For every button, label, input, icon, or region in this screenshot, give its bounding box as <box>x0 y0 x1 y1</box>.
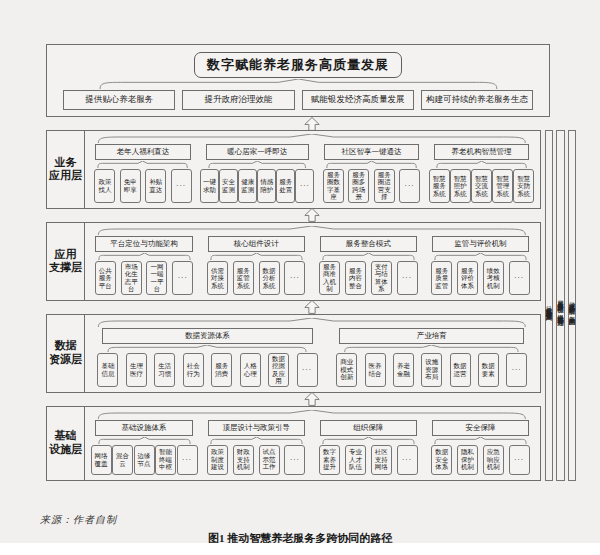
items-row: 数据安全体系隐私保护机制应急响应机制··· <box>426 445 534 475</box>
item-box: 生活习惯 <box>154 353 175 387</box>
layers-stack: 业务 应用层老年人福利直达政策找人免申即享补贴直达···暖心居家一呼即达一键求助… <box>46 117 541 481</box>
ellipsis-box: ··· <box>172 261 193 295</box>
groups-row-3: 基础设施体系网络覆盖混合云边缘节点智能终端中枢···顶层设计与政策引导政策制度建… <box>90 420 535 475</box>
layer-row-2: 数据 资源层数据资源体系基础信息生理医疗生活习惯社会行为服务消费人格心理数据挖掘… <box>46 314 541 393</box>
item-box: 边缘节点 <box>134 445 155 475</box>
brace-icon <box>96 79 501 89</box>
architecture-diagram: 数字赋能养老服务高质量发展 提供贴心养老服务提升政府治理效能赋能银发经济高质量发… <box>46 44 576 481</box>
item-box: 智慧安防系统 <box>513 169 534 203</box>
item-box: 数据安全体系 <box>431 445 452 475</box>
item-box: 社会行为 <box>183 353 204 387</box>
group-header: 老年人福利直达 <box>95 144 190 160</box>
brace-icon <box>97 161 188 168</box>
item-box: 生理医疗 <box>126 353 147 387</box>
side-columns: 社会保障体系（解决养老资金来源问题）养老服务体系（解决由谁提供、提供什么样的养老… <box>545 130 577 481</box>
layer-content-1: 平台定位与功能架构公共服务平台市场化生态平台一网一端一平台···核心组件设计供需… <box>85 223 540 300</box>
layer-arrow-row <box>46 301 541 314</box>
layer-content-0: 老年人福利直达政策找人免申即享补贴直达···暖心居家一呼即达一键求助安全监测健康… <box>85 131 540 208</box>
group-header: 组织保障 <box>320 420 417 436</box>
ellipsis-box: ··· <box>284 445 305 475</box>
group-header: 基础设施体系 <box>95 420 192 436</box>
group-3-0: 基础设施体系网络覆盖混合云边缘节点智能终端中枢··· <box>90 420 198 475</box>
item-box: 社区支持网络 <box>371 445 392 475</box>
group-header: 数据资源体系 <box>102 328 313 344</box>
brace-icon <box>434 437 527 444</box>
layer-label-1: 应用 支撑层 <box>47 223 85 300</box>
ellipsis-box: ··· <box>506 353 527 387</box>
item-box: 混合云 <box>112 445 133 475</box>
item-box: 服务评价体系 <box>457 261 478 295</box>
top-section-wrap: 数字赋能养老服务高质量发展 提供贴心养老服务提升政府治理效能赋能银发经济高质量发… <box>46 44 550 117</box>
item-box: 一网一端一平台 <box>146 261 167 295</box>
item-box: 供需对接系统 <box>207 261 228 295</box>
item-box: 数据运营 <box>450 353 471 387</box>
ellipsis-box: ··· <box>399 169 420 203</box>
items-row: 网络覆盖混合云边缘节点智能终端中枢··· <box>90 445 198 475</box>
items-row: 供需对接系统服务监管系统数据分析系统··· <box>202 261 310 295</box>
item-box: 智慧服务系统 <box>429 169 450 203</box>
item-box: 服务处置 <box>276 169 295 203</box>
item-box: 服务内容整合 <box>345 261 366 295</box>
group-1-3: 监管与评价机制服务质量监管服务评价体系绩效考核机制··· <box>426 236 534 295</box>
item-box: 数字素养提升 <box>319 445 340 475</box>
figure-caption: 图1 推动智慧养老服务多跨协同的路径 <box>0 531 600 543</box>
item-box: 政策制度建设 <box>207 445 228 475</box>
group-header: 服务整合模式 <box>320 236 417 252</box>
brace-icon <box>106 345 308 352</box>
brace-icon <box>94 410 530 419</box>
item-box: 财政支持机制 <box>233 445 254 475</box>
item-box: 智慧管理系统 <box>492 169 513 203</box>
item-box: 智能终端中枢 <box>155 445 176 475</box>
item-box: 数据挖掘及应用 <box>268 353 289 387</box>
ellipsis-box: ··· <box>297 353 318 387</box>
ellipsis-box: ··· <box>509 261 530 295</box>
top-goal-section: 数字赋能养老服务高质量发展 提供贴心养老服务提升政府治理效能赋能银发经济高质量发… <box>46 44 550 117</box>
brace-icon <box>94 226 530 235</box>
layer-content-3: 基础设施体系网络覆盖混合云边缘节点智能终端中枢···顶层设计与政策引导政策制度建… <box>85 407 540 480</box>
ellipsis-box: ··· <box>171 169 192 203</box>
item-box: 绩效考核机制 <box>483 261 504 295</box>
group-header: 产业培育 <box>339 328 524 344</box>
group-header: 顶层设计与政策引导 <box>208 420 305 436</box>
layer-arrow-row <box>46 393 541 406</box>
items-row: 智慧服务系统智慧照护系统智慧交流系统智慧管理系统智慧安防系统 <box>429 169 535 203</box>
item-box: 商业模式创新 <box>336 353 357 387</box>
item-box: 服务圈多跨场景 <box>348 169 369 203</box>
group-0-2: 社区智享一键通达服务圈数字基座服务圈多跨场景服务圈运营支撑··· <box>319 144 425 203</box>
items-row: 政策找人免申即享补贴直达··· <box>90 169 196 203</box>
item-box: 专业人才队伍 <box>345 445 366 475</box>
layer-arrow-row <box>46 209 541 222</box>
brace-icon <box>208 161 306 168</box>
group-header: 核心组件设计 <box>208 236 305 252</box>
group-header: 养老机构智慧管理 <box>434 144 529 160</box>
source-note: 来源：作者自制 <box>40 513 117 527</box>
group-0-0: 老年人福利直达政策找人免申即享补贴直达··· <box>90 144 196 203</box>
brace-icon <box>94 134 530 143</box>
brace-icon <box>434 253 527 260</box>
item-box: 数据分析系统 <box>259 261 280 295</box>
item-box: 医养结合 <box>365 353 386 387</box>
item-box: 基础信息 <box>97 353 118 387</box>
brace-icon <box>322 437 415 444</box>
figure-panel: 数字赋能养老服务高质量发展 提供贴心养老服务提升政府治理效能赋能银发经济高质量发… <box>0 0 600 543</box>
item-box: 服务圈数字基座 <box>323 169 344 203</box>
item-box: 公共服务平台 <box>95 261 116 295</box>
layer-row-1: 应用 支撑层平台定位与功能架构公共服务平台市场化生态平台一网一端一平台···核心… <box>46 222 541 301</box>
item-box: 市场化生态平台 <box>121 261 142 295</box>
item-box: 免申即享 <box>120 169 141 203</box>
group-header: 监管与评价机制 <box>432 236 529 252</box>
goal-box-3: 构建可持续的养老服务生态 <box>421 90 533 110</box>
items-row: 一键求助安全监测健康监测情感陪护服务处置··· <box>200 169 315 203</box>
item-box: 一键求助 <box>200 169 219 203</box>
brace-icon <box>210 437 303 444</box>
item-box: 服务圈运营支撑 <box>374 169 395 203</box>
brace-icon <box>343 345 520 352</box>
goal-box-0: 提供贴心养老服务 <box>63 90 175 110</box>
brace-icon <box>436 161 527 168</box>
group-1-2: 服务整合模式服务商准入机制服务内容整合支付与结算体系··· <box>314 236 422 295</box>
up-arrow-icon <box>304 208 320 222</box>
up-arrow-icon <box>304 117 320 131</box>
goals-row: 提供贴心养老服务提升政府治理效能赋能银发经济高质量发展构建可持续的养老服务生态 <box>57 90 539 110</box>
item-box: 服务消费 <box>211 353 232 387</box>
layer-label-0: 业务 应用层 <box>47 131 85 208</box>
group-header: 安全保障 <box>432 420 529 436</box>
side-column-0: 社会保障体系（解决养老资金来源问题） <box>545 130 554 481</box>
brace-icon <box>326 161 417 168</box>
up-arrow-icon <box>304 300 320 314</box>
brace-icon <box>98 253 191 260</box>
ellipsis-box: ··· <box>177 445 198 475</box>
group-header: 暖心居家一呼即达 <box>206 144 309 160</box>
item-box: 服务质量监管 <box>431 261 452 295</box>
item-box: 智慧照护系统 <box>450 169 471 203</box>
item-box: 政策找人 <box>94 169 115 203</box>
group-header: 平台定位与功能架构 <box>95 236 192 252</box>
layer-row-0: 业务 应用层老年人福利直达政策找人免申即享补贴直达···暖心居家一呼即达一键求助… <box>46 130 541 209</box>
item-box: 情感陪护 <box>257 169 276 203</box>
brace-icon <box>94 318 530 327</box>
group-0-1: 暖心居家一呼即达一键求助安全监测健康监测情感陪护服务处置··· <box>200 144 315 203</box>
item-box: 数据要素 <box>478 353 499 387</box>
group-2-0: 数据资源体系基础信息生理医疗生活习惯社会行为服务消费人格心理数据挖掘及应用··· <box>90 328 325 387</box>
groups-row-2: 数据资源体系基础信息生理医疗生活习惯社会行为服务消费人格心理数据挖掘及应用···… <box>90 328 535 387</box>
items-row: 数字素养提升专业人才队伍社区支持网络··· <box>314 445 422 475</box>
layer-row-3: 基础 设施层基础设施体系网络覆盖混合云边缘节点智能终端中枢···顶层设计与政策引… <box>46 406 541 481</box>
items-row: 基础信息生理医疗生活习惯社会行为服务消费人格心理数据挖掘及应用··· <box>90 353 325 387</box>
group-1-0: 平台定位与功能架构公共服务平台市场化生态平台一网一端一平台··· <box>90 236 198 295</box>
item-box: 服务商准入机制 <box>319 261 340 295</box>
layer-arrow-row <box>46 117 541 130</box>
item-box: 人格心理 <box>240 353 261 387</box>
items-row: 公共服务平台市场化生态平台一网一端一平台··· <box>90 261 198 295</box>
ellipsis-box: ··· <box>397 261 418 295</box>
items-row: 服务质量监管服务评价体系绩效考核机制··· <box>426 261 534 295</box>
layer-label-2: 数据 资源层 <box>47 315 85 392</box>
groups-row-1: 平台定位与功能架构公共服务平台市场化生态平台一网一端一平台···核心组件设计供需… <box>90 236 535 295</box>
item-box: 安全监测 <box>219 169 238 203</box>
brace-icon <box>210 253 303 260</box>
item-box: 补贴直达 <box>145 169 166 203</box>
group-0-3: 养老机构智慧管理智慧服务系统智慧照护系统智慧交流系统智慧管理系统智慧安防系统 <box>429 144 535 203</box>
groups-row-0: 老年人福利直达政策找人免申即享补贴直达···暖心居家一呼即达一键求助安全监测健康… <box>90 144 535 203</box>
items-row: 服务圈数字基座服务圈多跨场景服务圈运营支撑··· <box>319 169 425 203</box>
group-3-3: 安全保障数据安全体系隐私保护机制应急响应机制··· <box>426 420 534 475</box>
item-box: 服务监管系统 <box>233 261 254 295</box>
goal-box-2: 赋能银发经济高质量发展 <box>302 90 414 110</box>
group-3-2: 组织保障数字素养提升专业人才队伍社区支持网络··· <box>314 420 422 475</box>
item-box: 设施资源布局 <box>421 353 442 387</box>
layer-label-3: 基础 设施层 <box>47 407 85 480</box>
layer-content-2: 数据资源体系基础信息生理医疗生活习惯社会行为服务消费人格心理数据挖掘及应用···… <box>85 315 540 392</box>
group-1-1: 核心组件设计供需对接系统服务监管系统数据分析系统··· <box>202 236 310 295</box>
ellipsis-box: ··· <box>284 261 305 295</box>
layers-and-side: 业务 应用层老年人福利直达政策找人免申即享补贴直达···暖心居家一呼即达一键求助… <box>46 117 576 481</box>
group-2-1: 产业培育商业模式创新医养结合养老金融设施资源布局数据运营数据要素··· <box>329 328 535 387</box>
item-box: 智慧交流系统 <box>471 169 492 203</box>
item-box: 支付与结算体系 <box>371 261 392 295</box>
group-header: 社区智享一键通达 <box>324 144 419 160</box>
ellipsis-box: ··· <box>295 169 314 203</box>
item-box: 隐私保护机制 <box>457 445 478 475</box>
item-box: 网络覆盖 <box>91 445 112 475</box>
items-row: 服务商准入机制服务内容整合支付与结算体系··· <box>314 261 422 295</box>
item-box: 试点示范工作 <box>259 445 280 475</box>
up-arrow-icon <box>304 392 320 406</box>
brace-icon <box>98 437 191 444</box>
item-box: 应急响应机制 <box>483 445 504 475</box>
item-box: 健康监测 <box>238 169 257 203</box>
goal-box-1: 提升政府治理效能 <box>182 90 294 110</box>
ellipsis-box: ··· <box>397 445 418 475</box>
item-box: 养老金融 <box>393 353 414 387</box>
items-row: 商业模式创新医养结合养老金融设施资源布局数据运营数据要素··· <box>329 353 535 387</box>
diagram-title: 数字赋能养老服务高质量发展 <box>194 52 402 78</box>
brace-icon <box>322 253 415 260</box>
side-column-1: 养老服务体系（解决由谁提供、提供什么样的养老服务等问题） <box>556 130 565 481</box>
ellipsis-box: ··· <box>509 445 530 475</box>
side-column-2: 健康支撑体系（解决老有所医、老年康养的问题） <box>568 130 577 481</box>
items-row: 政策制度建设财政支持机制试点示范工作··· <box>202 445 310 475</box>
group-3-1: 顶层设计与政策引导政策制度建设财政支持机制试点示范工作··· <box>202 420 310 475</box>
